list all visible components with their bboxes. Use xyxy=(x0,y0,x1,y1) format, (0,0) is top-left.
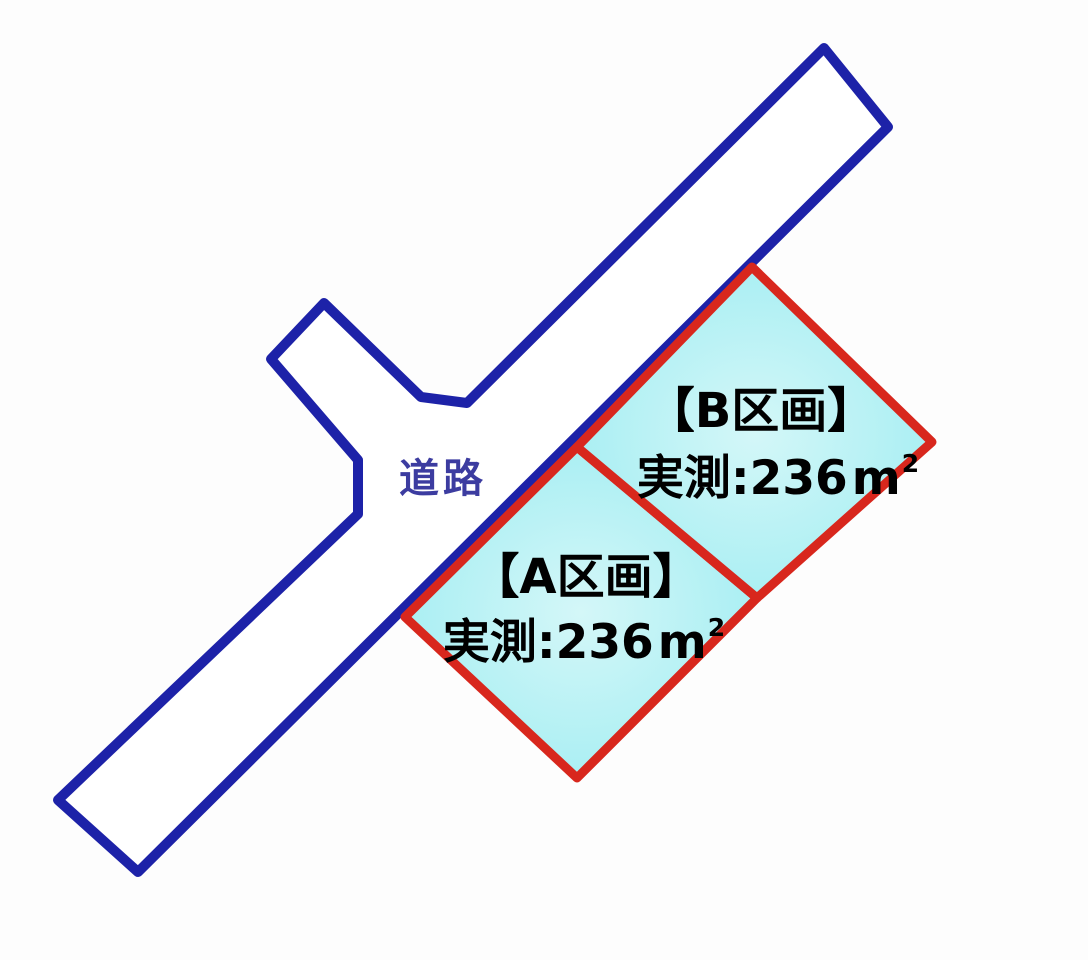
plot-b-title: 【B区画】 xyxy=(647,383,876,439)
plot-a-area-unit-exponent: 2 xyxy=(708,613,725,642)
plot-a-area-value: 実測:236 xyxy=(443,615,654,670)
plot-a-title: 【A区画】 xyxy=(471,549,700,605)
site-plan-canvas: 道路 【B区画】 実測:236m2 【A区画】 実測:236m2 xyxy=(0,0,1088,960)
site-plan-svg: 道路 【B区画】 実測:236m2 【A区画】 実測:236m2 xyxy=(0,0,1088,960)
plot-a-area: 実測:236m2 xyxy=(443,613,725,670)
plot-b-area-value: 実測:236 xyxy=(637,451,848,506)
plot-b-area-unit: m xyxy=(852,451,901,506)
plot-b-area: 実測:236m2 xyxy=(637,449,919,506)
plot-b-area-unit-exponent: 2 xyxy=(902,449,919,478)
road-label: 道路 xyxy=(399,456,487,502)
plot-a-area-unit: m xyxy=(658,615,707,670)
